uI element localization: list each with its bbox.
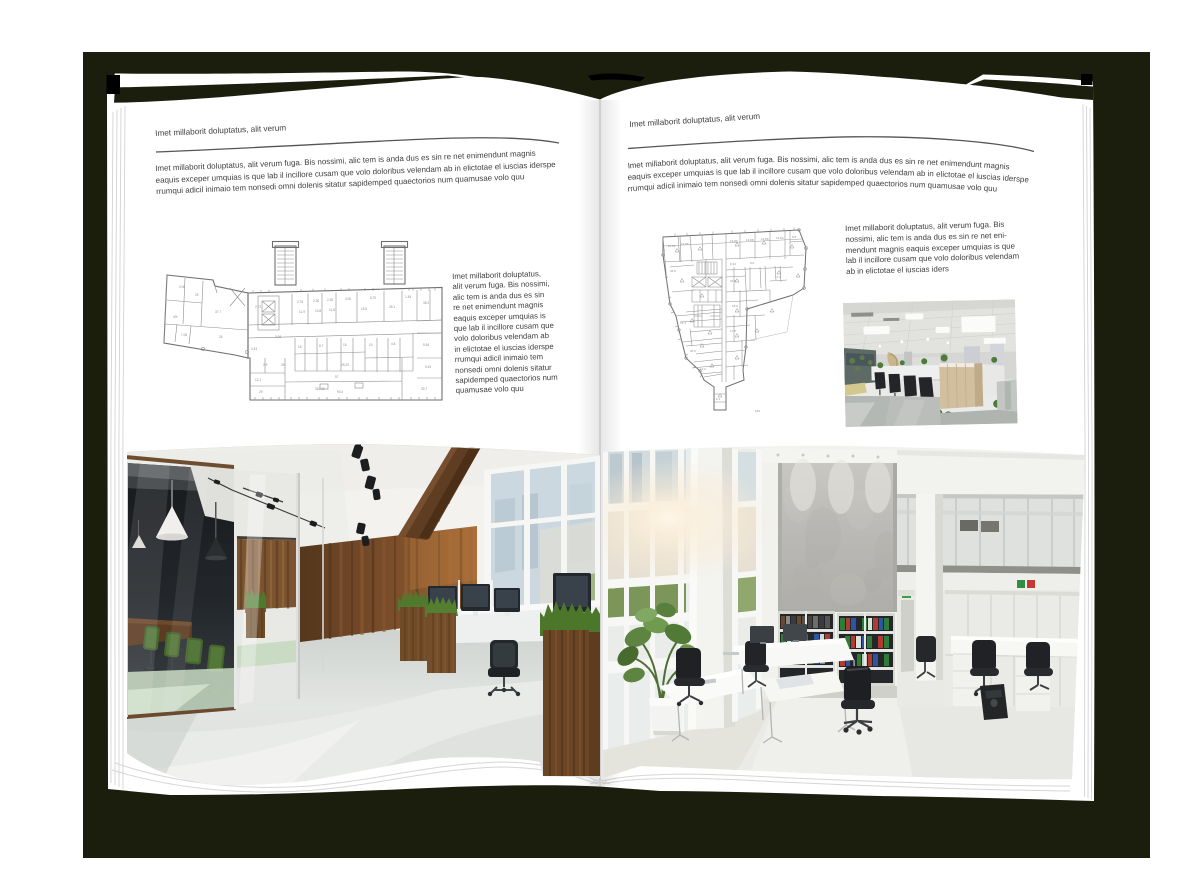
svg-text:34.9: 34.9 xyxy=(670,269,676,273)
svg-text:5.43: 5.43 xyxy=(425,365,431,369)
svg-text:3.00: 3.00 xyxy=(345,297,351,301)
svg-text:rrumqui adicil inimaio tem non: rrumqui adicil inimaio tem nonsedi omni … xyxy=(627,178,997,194)
svg-text:16.5: 16.5 xyxy=(361,307,367,311)
svg-text:7.06: 7.06 xyxy=(181,333,187,337)
svg-text:10.8: 10.8 xyxy=(315,309,321,313)
svg-text:4%: 4% xyxy=(173,315,178,319)
svg-text:9.34: 9.34 xyxy=(730,262,736,266)
svg-text:14.06: 14.06 xyxy=(761,237,769,241)
svg-text:2.30: 2.30 xyxy=(313,299,319,303)
svg-text:5.54: 5.54 xyxy=(423,343,429,347)
svg-text:2.9: 2.9 xyxy=(263,363,268,367)
svg-text:26: 26 xyxy=(281,363,285,367)
svg-text:1.45: 1.45 xyxy=(405,295,411,299)
svg-text:2.76: 2.76 xyxy=(297,300,303,304)
svg-text:90.3: 90.3 xyxy=(337,390,343,394)
svg-text:25.20: 25.20 xyxy=(341,363,349,367)
svg-text:16: 16 xyxy=(298,345,302,349)
svg-text:13.92: 13.92 xyxy=(776,236,784,240)
svg-text:184: 184 xyxy=(755,409,760,413)
svg-text:57: 57 xyxy=(335,375,339,379)
svg-text:21.6: 21.6 xyxy=(730,279,736,283)
svg-text:2.06: 2.06 xyxy=(179,285,185,289)
svg-text:17.2: 17.2 xyxy=(775,275,781,279)
svg-text:28.1: 28.1 xyxy=(389,305,395,309)
svg-text:13.80: 13.80 xyxy=(730,239,738,243)
svg-text:2.30: 2.30 xyxy=(327,298,333,302)
svg-text:4.43: 4.43 xyxy=(251,347,257,351)
svg-text:11.9: 11.9 xyxy=(299,310,305,314)
svg-text:12.96: 12.96 xyxy=(681,242,689,246)
svg-text:30.7: 30.7 xyxy=(421,387,427,391)
svg-text:8.7: 8.7 xyxy=(319,344,324,348)
svg-text:2.72: 2.72 xyxy=(255,305,261,309)
svg-text:26: 26 xyxy=(219,335,223,339)
svg-text:13.98: 13.98 xyxy=(746,238,754,242)
svg-text:29: 29 xyxy=(259,390,263,394)
svg-text:25: 25 xyxy=(195,293,199,297)
svg-text:10: 10 xyxy=(369,343,373,347)
svg-text:17.8: 17.8 xyxy=(730,329,736,333)
svg-text:30.5: 30.5 xyxy=(690,349,696,353)
svg-text:9.0: 9.0 xyxy=(750,261,755,265)
svg-text:12.1: 12.1 xyxy=(255,378,261,382)
svg-text:18.6: 18.6 xyxy=(732,304,738,308)
svg-text:5.70: 5.70 xyxy=(370,296,376,300)
svg-text:6.8: 6.8 xyxy=(792,235,797,239)
svg-text:14.86: 14.86 xyxy=(668,244,676,248)
svg-text:72.4: 72.4 xyxy=(680,321,686,325)
svg-text:12.2: 12.2 xyxy=(700,367,706,371)
svg-text:15: 15 xyxy=(343,343,347,347)
svg-text:6.1: 6.1 xyxy=(716,397,721,401)
svg-text:4.8: 4.8 xyxy=(391,342,396,346)
svg-text:3.06: 3.06 xyxy=(275,335,281,339)
svg-text:35.2: 35.2 xyxy=(423,301,429,305)
svg-text:11.8: 11.8 xyxy=(329,308,335,312)
svg-text:37.7: 37.7 xyxy=(215,310,221,314)
